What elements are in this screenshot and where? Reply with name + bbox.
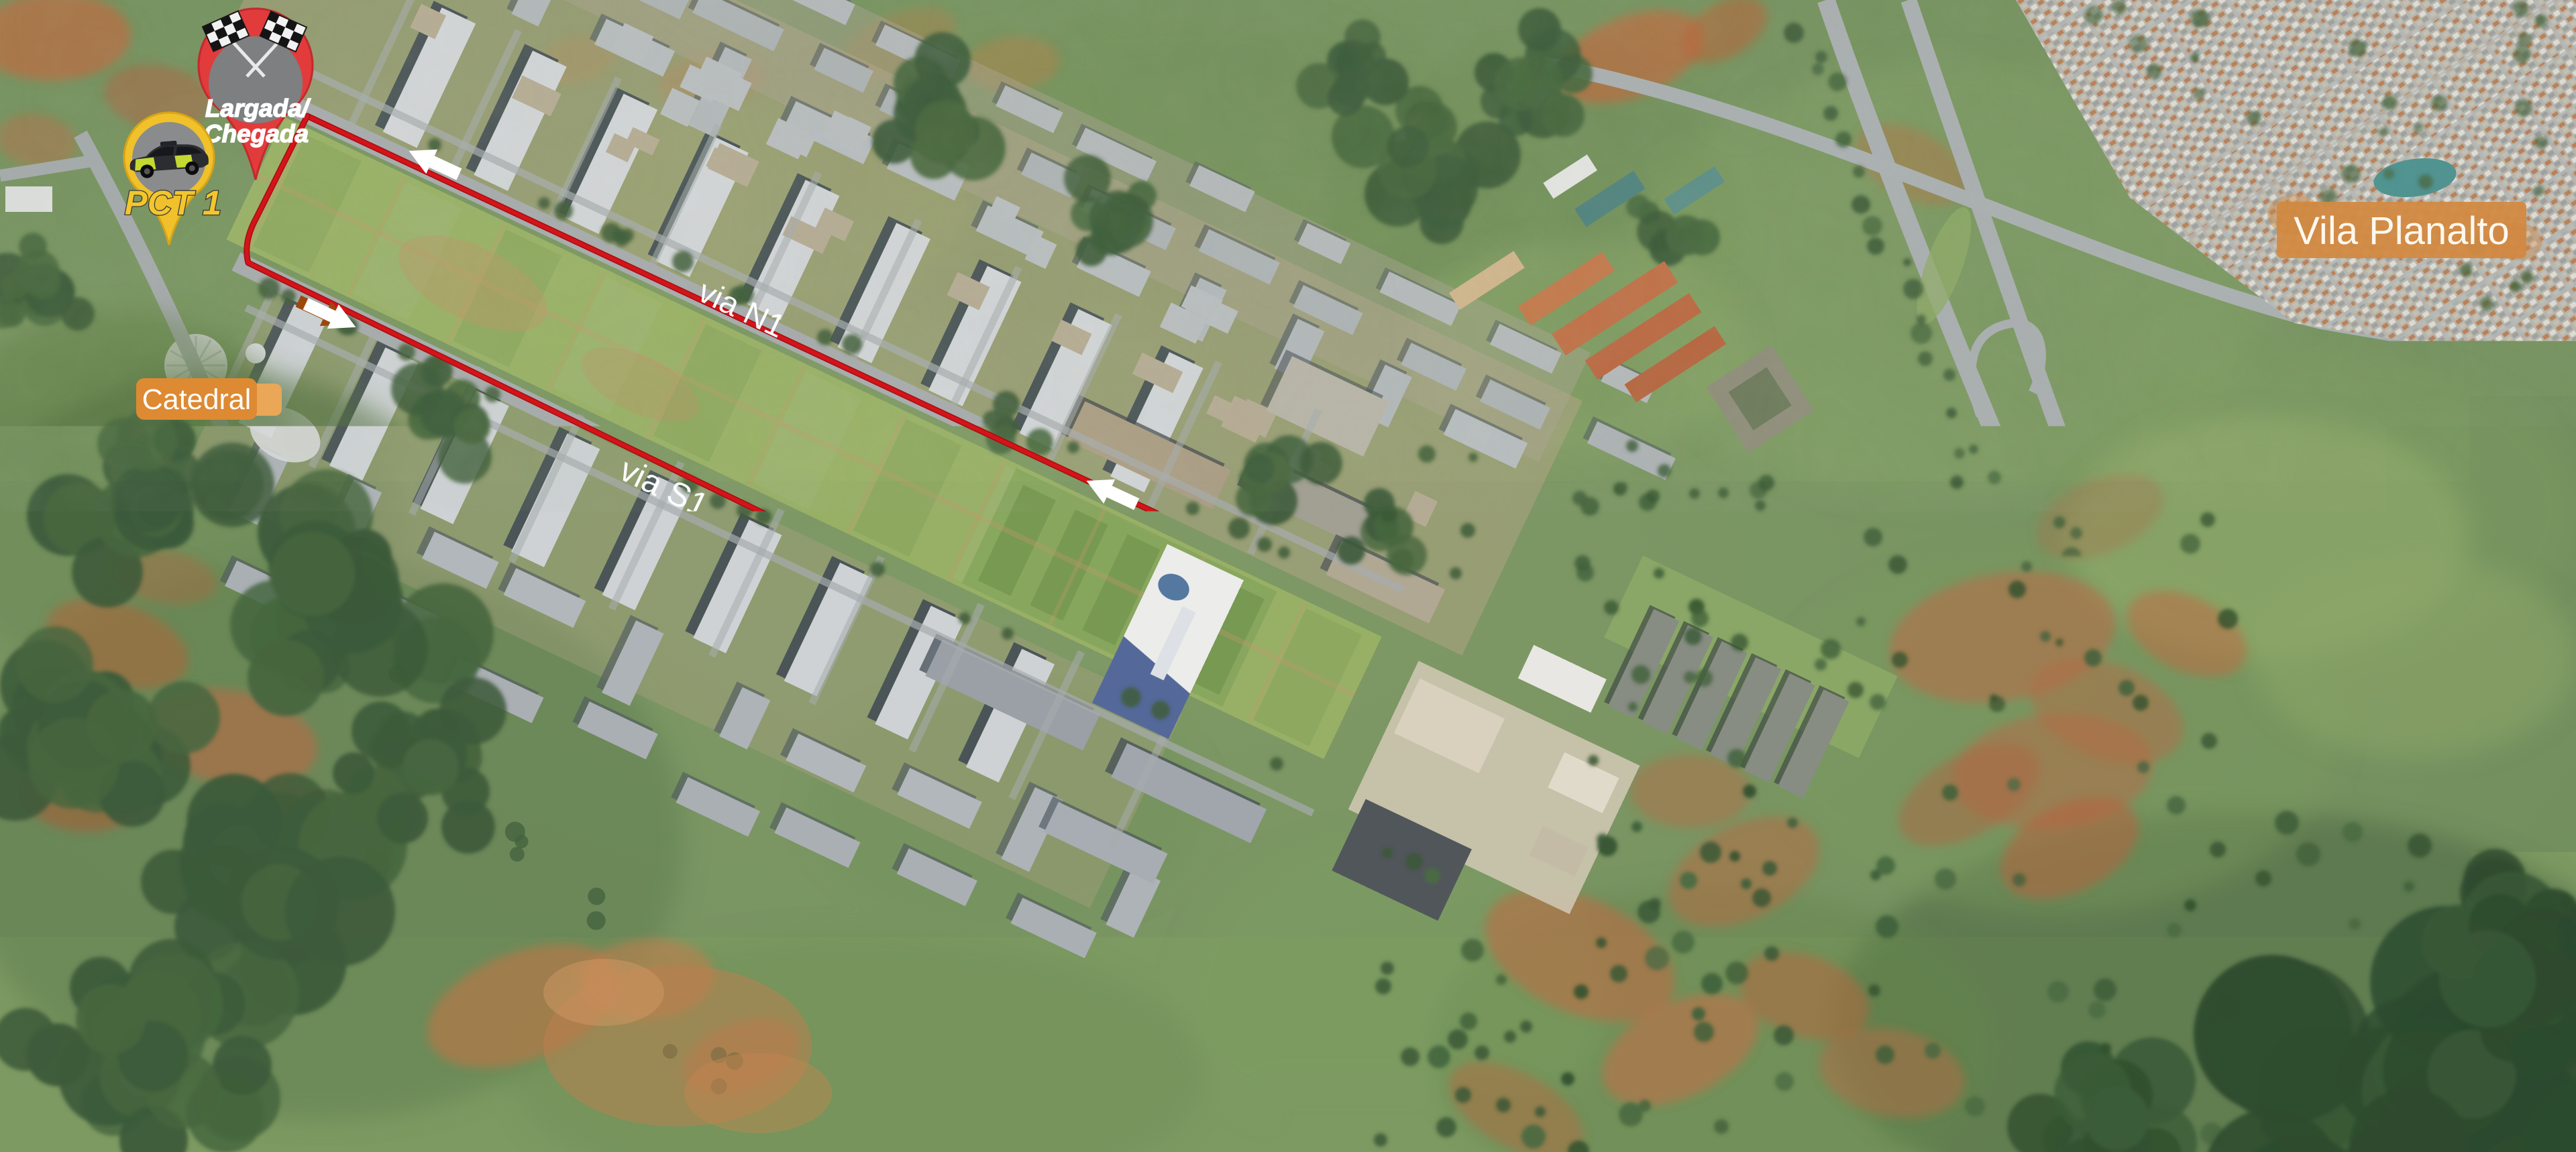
svg-text:Chegada: Chegada <box>204 120 309 148</box>
svg-text:PCT 2: PCT 2 <box>2171 978 2271 1018</box>
svg-text:Largada 7h: Largada 7h <box>633 1086 1017 1146</box>
svg-text:Vila Planalto: Vila Planalto <box>2294 209 2509 253</box>
svg-text:PCT 1: PCT 1 <box>125 184 222 222</box>
svg-text:Largada/: Largada/ <box>205 95 311 122</box>
svg-text:Catedral: Catedral <box>142 384 252 416</box>
svg-text:Praça 3: Praça 3 <box>1399 736 1538 781</box>
svg-text:Percurso 5k e 10k (duas voltas: Percurso 5k e 10k (duas voltas) <box>113 932 986 1007</box>
svg-text:poderes: poderes <box>1396 782 1542 827</box>
